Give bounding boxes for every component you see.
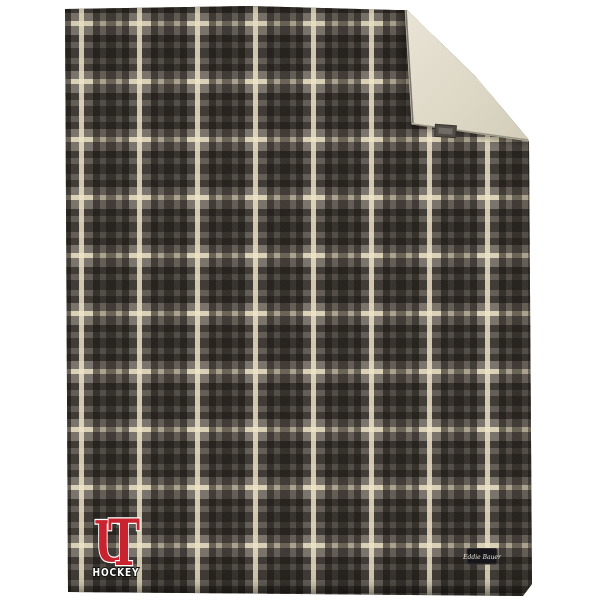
logo-word: HOCKEY: [93, 567, 140, 579]
fold-tag: [435, 124, 457, 137]
blanket-overlay: Eddie Bauer U T HOCKEY: [0, 0, 600, 600]
sherpa-lining: [405, 7, 530, 141]
fold-tag-inner: [438, 128, 452, 135]
team-logo: U T HOCKEY: [93, 506, 141, 581]
brand-tag: Eddie Bauer: [462, 549, 502, 565]
blanket: Eddie Bauer U T HOCKEY: [0, 0, 600, 600]
product-photo: Eddie Bauer U T HOCKEY: [0, 0, 600, 600]
brand-tag-text: Eddie Bauer: [462, 554, 502, 561]
